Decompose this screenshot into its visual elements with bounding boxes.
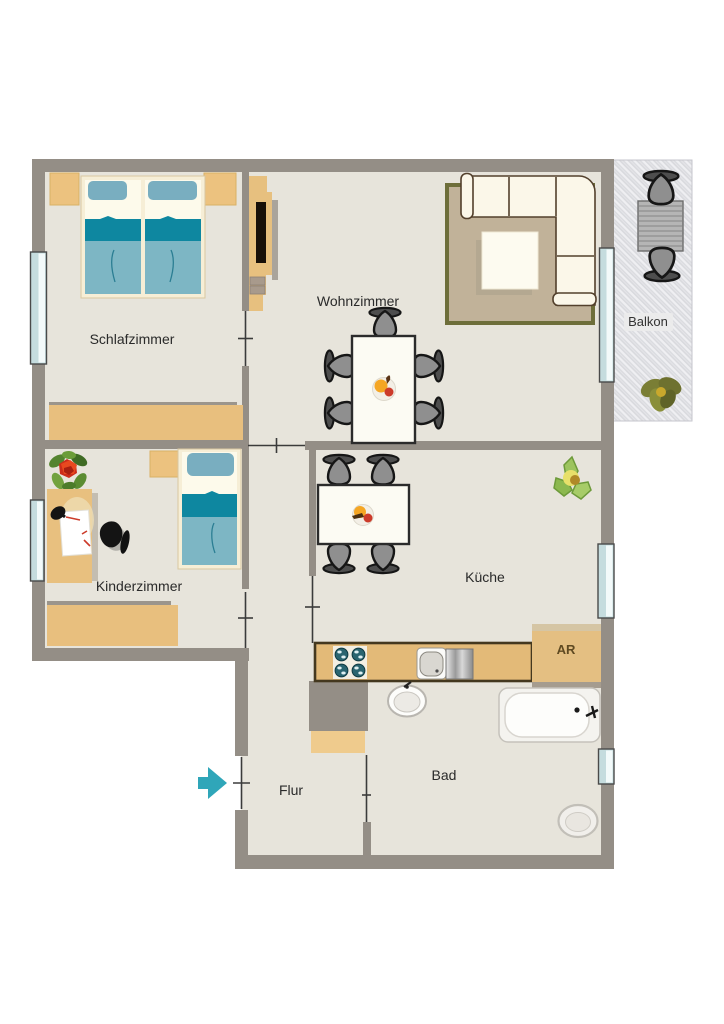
svg-text:Balkon: Balkon [628, 314, 668, 329]
svg-text:Schlafzimmer: Schlafzimmer [90, 331, 175, 347]
svg-text:Bad: Bad [432, 767, 457, 783]
svg-text:Flur: Flur [279, 782, 303, 798]
svg-text:Küche: Küche [465, 569, 505, 585]
svg-text:AR: AR [557, 642, 576, 657]
svg-text:Kinderzimmer: Kinderzimmer [96, 578, 183, 594]
svg-text:Wohnzimmer: Wohnzimmer [317, 293, 400, 309]
